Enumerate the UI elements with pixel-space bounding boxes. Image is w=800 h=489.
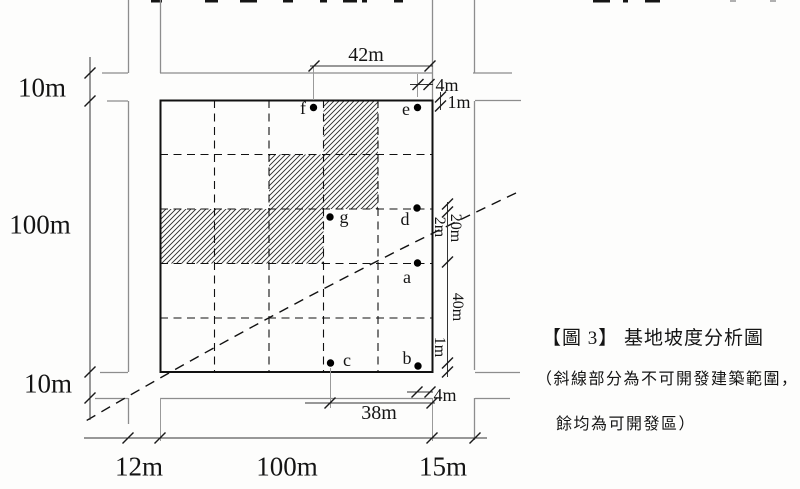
point-d-label: d [401, 210, 410, 228]
dim-top-42m: 42m [348, 45, 384, 65]
dim-left-middle: 100m [9, 212, 71, 239]
point-c-label: c [343, 351, 351, 369]
dim-right-40m: 40m [449, 293, 465, 321]
dim-bottom-middle: 100m [256, 454, 318, 481]
dim-left-top: 10m [18, 75, 66, 102]
dim-bottom-right: 15m [419, 454, 467, 481]
figure-caption-note-line2: 餘均為可開發區） [556, 416, 696, 434]
point-a-label: a [403, 268, 411, 286]
point-g-label: g [340, 208, 349, 226]
point-b-label: b [403, 349, 412, 367]
figure-caption-note-line1: （斜線部分為不可開發建築範圍， [536, 371, 799, 389]
point-e-label: e [402, 100, 410, 118]
dim-right-20m: 20m [447, 214, 463, 242]
point-f-label: f [300, 99, 306, 117]
dim-bottom-4m: 4m [433, 386, 456, 404]
dim-top-1m: 1m [447, 93, 470, 111]
point-e-dot [414, 104, 421, 111]
dim-left-bottom: 10m [24, 371, 72, 398]
point-f-dot [310, 104, 317, 111]
figure-3-site-slope-analysis: 10m 100m 10m 12m 100m 15m 42m 4m 1m 2m 2… [0, 0, 800, 489]
dim-right-1m: 1m [431, 337, 447, 357]
point-d-dot [413, 204, 420, 211]
point-g-dot [326, 213, 333, 220]
point-a-dot [414, 259, 421, 266]
dim-bottom-38m: 38m [361, 403, 397, 423]
figure-caption-title: 【圖 3】 基地坡度分析圖 [542, 328, 764, 350]
point-c-dot [327, 359, 334, 366]
top-edge-fragments [151, 0, 776, 3]
point-b-dot [414, 362, 421, 369]
dim-bottom-left: 12m [115, 454, 163, 481]
dim-right-2m: 2m [431, 217, 447, 237]
